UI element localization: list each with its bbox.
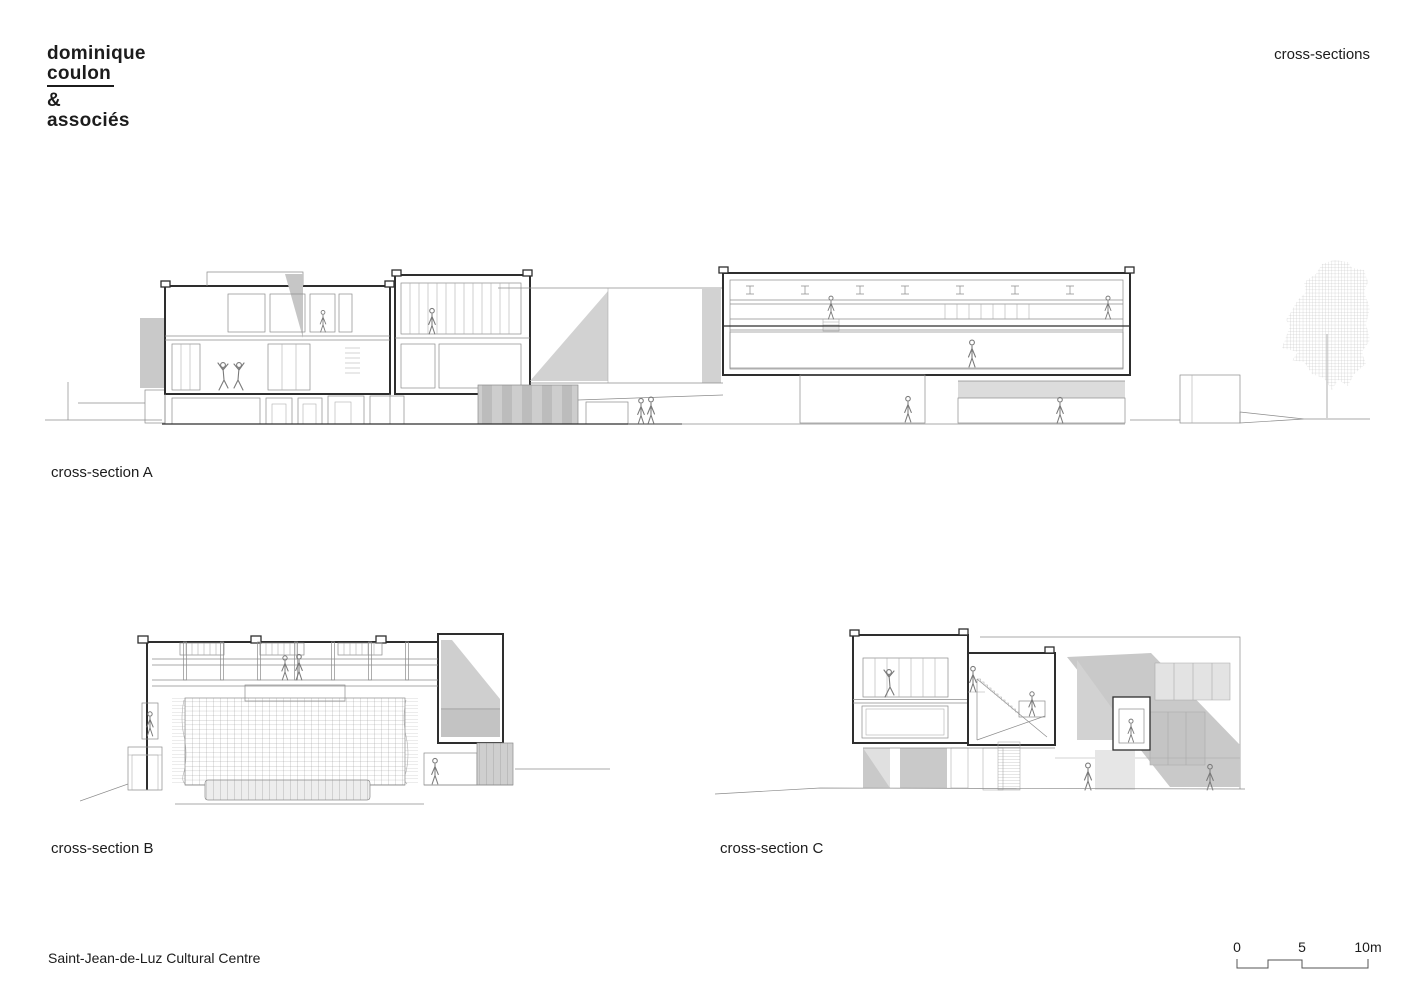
- section-a-building-mid: [392, 270, 532, 394]
- section-a-tree: [1282, 260, 1370, 418]
- section-a-hall: [719, 267, 1134, 375]
- section-c-block-left: [850, 629, 968, 743]
- cross-section-b-drawing: [80, 628, 620, 813]
- scale-tick-0: 0: [1233, 939, 1241, 955]
- drawing-sheet: dominique coulon & associés cross-sectio…: [0, 0, 1415, 1000]
- logo-line-4: associés: [47, 111, 146, 131]
- section-b-stage-wall: [128, 685, 424, 804]
- logo-line-1: dominique: [47, 44, 146, 64]
- section-a-building-left: [161, 272, 404, 424]
- sheet-title: cross-sections: [1274, 46, 1370, 63]
- label-cross-section-b: cross-section B: [51, 840, 154, 857]
- scale-bar-line: [1237, 959, 1368, 968]
- logo-line-3: &: [47, 91, 146, 111]
- section-c-annex: [1113, 697, 1150, 750]
- cross-section-c-drawing: [715, 627, 1245, 800]
- cross-section-a-drawing: [42, 248, 1372, 428]
- section-c-block-mid: [968, 647, 1055, 790]
- scale-tick-5: 5: [1298, 939, 1306, 955]
- scale-tick-10m: 10m: [1354, 939, 1381, 955]
- scale-bar: 0 5 10m: [1210, 930, 1390, 980]
- label-cross-section-a: cross-section A: [51, 464, 153, 481]
- label-cross-section-c: cross-section C: [720, 840, 823, 857]
- section-b-flytower: [438, 634, 503, 743]
- section-b-annex-right: [424, 743, 513, 785]
- studio-logo: dominique coulon & associés: [47, 44, 146, 131]
- logo-line-2: coulon: [47, 64, 114, 87]
- section-a-site-left: [45, 318, 168, 423]
- project-title: Saint-Jean-de-Luz Cultural Centre: [48, 950, 260, 966]
